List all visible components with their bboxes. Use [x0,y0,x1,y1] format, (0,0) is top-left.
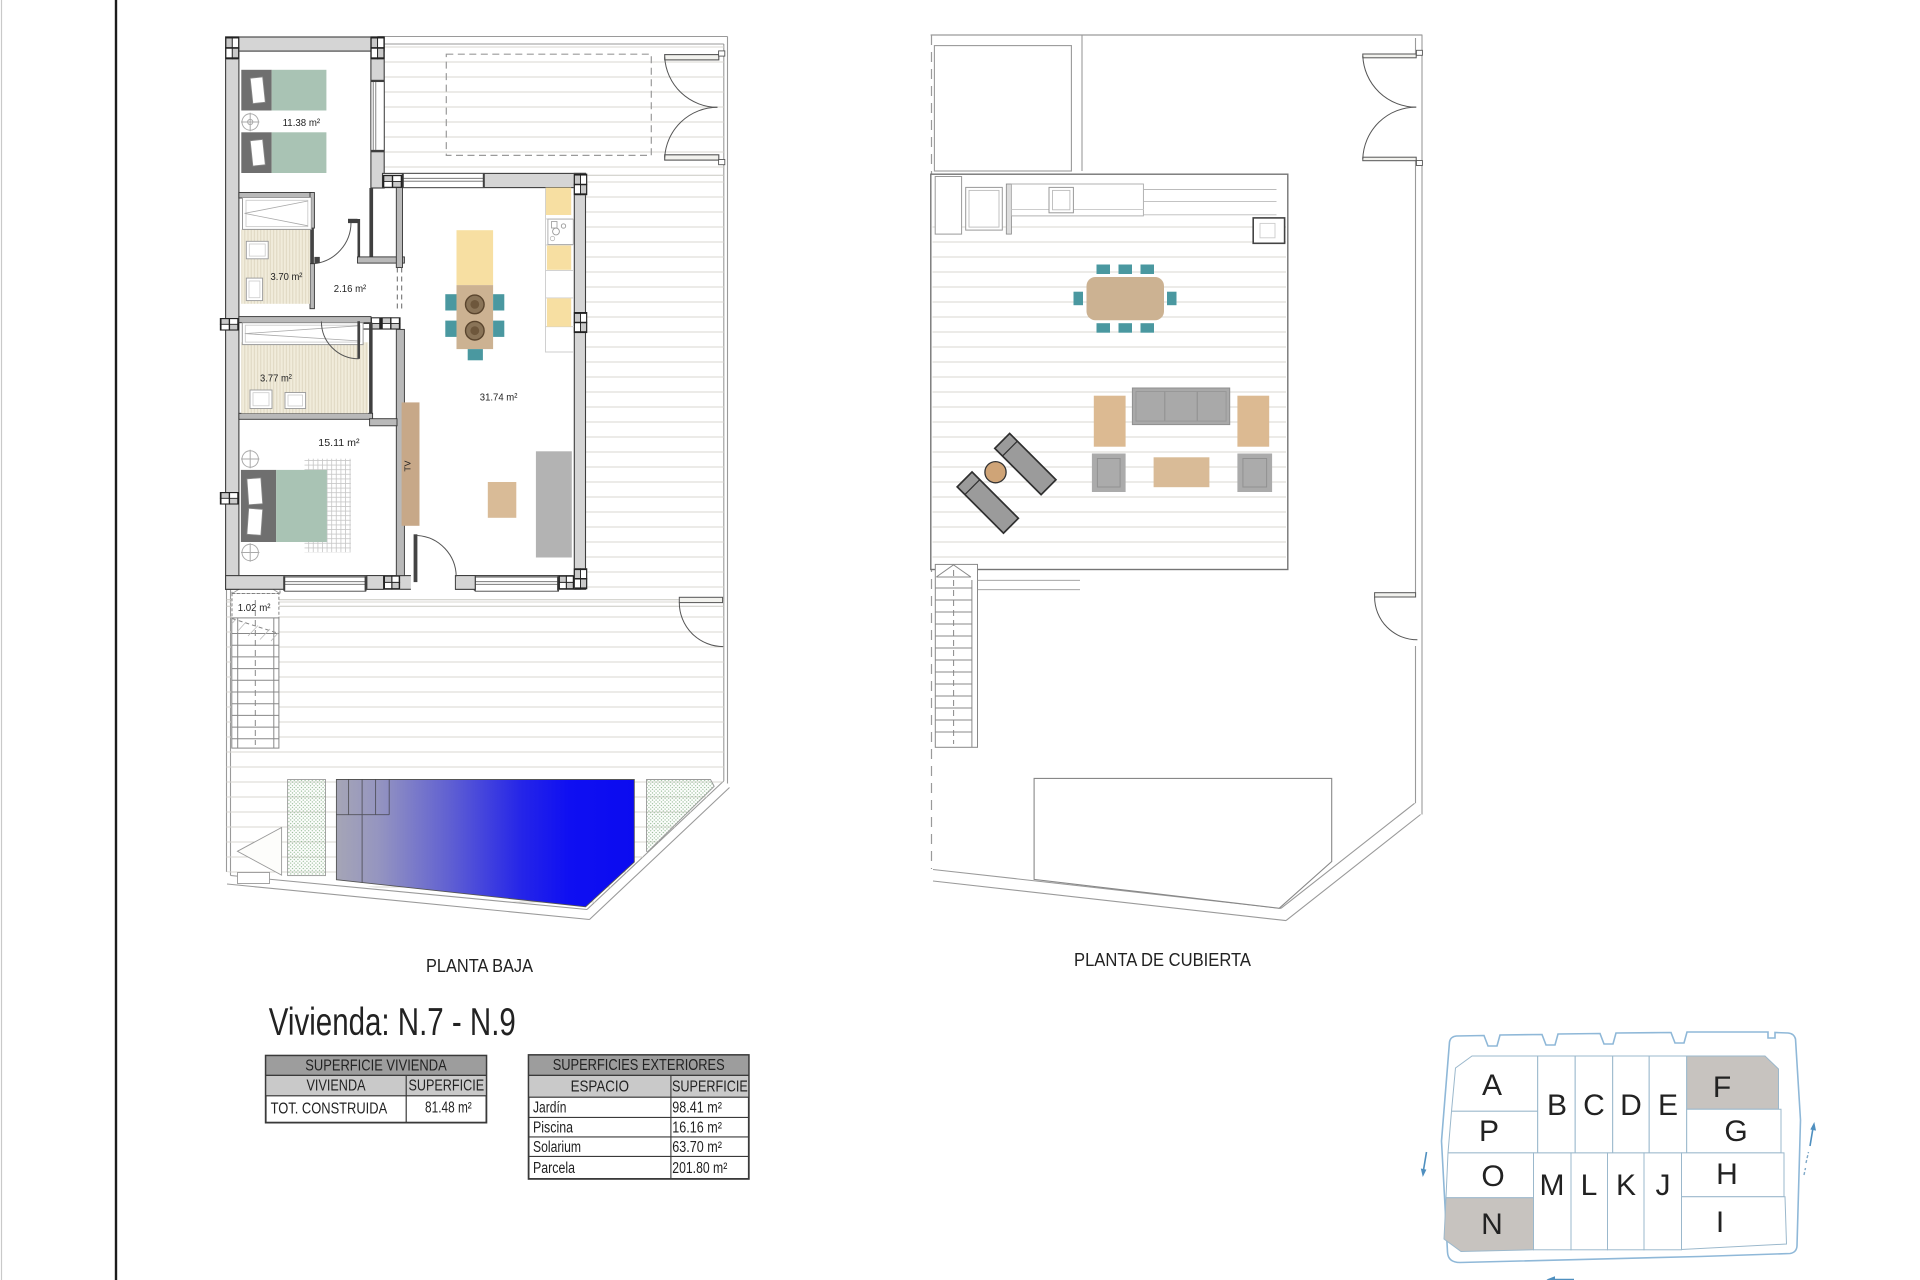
svg-text:63.70 m²: 63.70 m² [672,1139,722,1156]
svg-text:SUPERFICIE: SUPERFICIE [672,1078,748,1095]
svg-text:TOT. CONSTRUIDA: TOT. CONSTRUIDA [271,1100,388,1117]
svg-text:3.77 m²: 3.77 m² [260,372,292,384]
svg-text:PLANTA BAJA: PLANTA BAJA [426,956,533,976]
svg-text:A: A [1482,1069,1502,1102]
svg-text:M: M [1540,1169,1565,1202]
svg-text:TV: TV [403,460,413,471]
svg-text:ESPACIO: ESPACIO [571,1078,629,1095]
svg-text:K: K [1616,1169,1636,1202]
svg-text:J: J [1656,1169,1671,1202]
svg-text:C: C [1583,1089,1605,1122]
svg-text:Jardín: Jardín [533,1100,567,1117]
svg-text:98.41 m²: 98.41 m² [672,1100,722,1117]
svg-text:VIVIENDA: VIVIENDA [307,1078,367,1095]
svg-text:201.80 m²: 201.80 m² [672,1160,727,1177]
svg-text:Vivienda: N.7 - N.9: Vivienda: N.7 - N.9 [269,1001,516,1044]
svg-text:L: L [1581,1169,1598,1202]
svg-text:PLANTA DE CUBIERTA: PLANTA DE CUBIERTA [1074,950,1251,970]
svg-text:1.02 m²: 1.02 m² [238,602,271,614]
svg-text:11.38 m²: 11.38 m² [283,117,321,129]
svg-text:O: O [1481,1160,1504,1193]
svg-text:SUPERFICIE VIVIENDA: SUPERFICIE VIVIENDA [305,1057,447,1074]
svg-text:2.16 m²: 2.16 m² [334,283,367,295]
svg-text:G: G [1724,1115,1747,1148]
svg-text:3.70 m²: 3.70 m² [271,271,303,283]
svg-text:Piscina: Piscina [533,1119,573,1136]
svg-text:I: I [1716,1206,1724,1239]
svg-text:D: D [1620,1089,1642,1122]
svg-text:31.74 m²: 31.74 m² [480,392,518,404]
svg-text:H: H [1716,1158,1738,1191]
svg-text:P: P [1479,1115,1499,1148]
svg-text:N: N [1481,1208,1503,1241]
svg-text:F: F [1713,1071,1731,1104]
svg-text:SUPERFICIES EXTERIORES: SUPERFICIES EXTERIORES [553,1057,725,1074]
svg-text:15.11 m²: 15.11 m² [318,437,360,449]
svg-text:16.16 m²: 16.16 m² [672,1119,722,1136]
svg-text:B: B [1547,1089,1567,1122]
svg-text:SUPERFICIE: SUPERFICIE [408,1078,484,1095]
svg-text:Parcela: Parcela [533,1160,575,1177]
svg-text:81.48 m²: 81.48 m² [425,1099,472,1116]
svg-text:Solarium: Solarium [533,1139,581,1156]
svg-text:E: E [1658,1089,1678,1122]
